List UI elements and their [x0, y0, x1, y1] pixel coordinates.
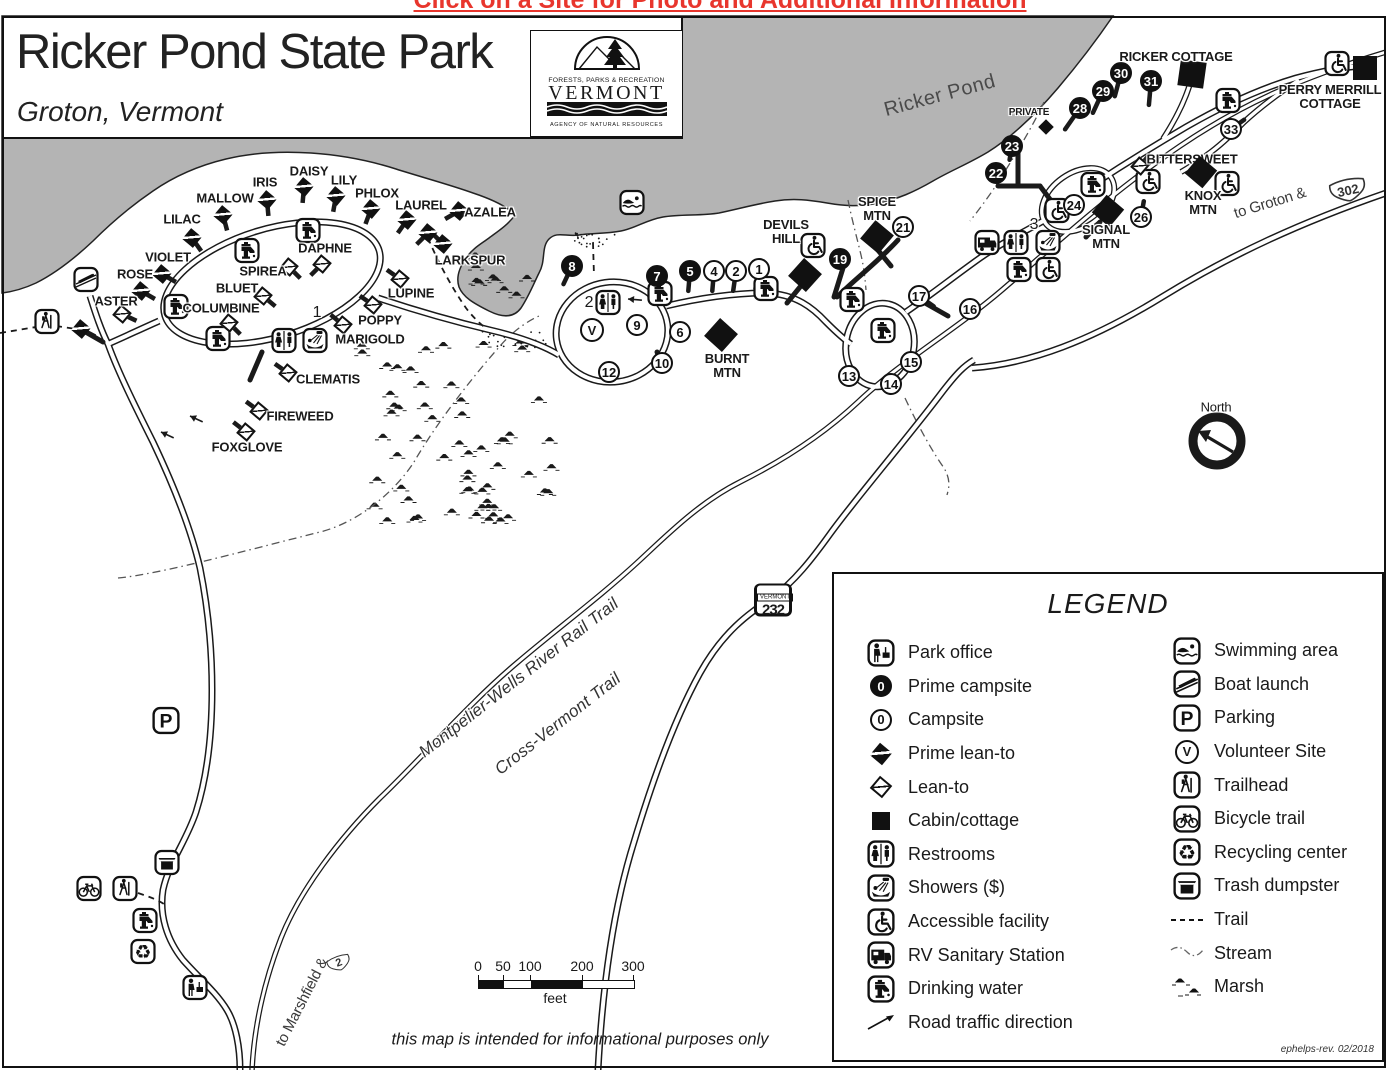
- roadarrow-legend-icon: [864, 1012, 898, 1032]
- scale-tick-label: 300: [621, 958, 644, 974]
- legend-item-trail: Trail: [1170, 903, 1347, 937]
- legend-item-cabin-cottage: Cabin/cottage: [864, 804, 1073, 838]
- showers-legend-icon: [864, 874, 898, 902]
- boat-legend-icon: [1170, 670, 1204, 698]
- legend-item-bicycle-trail: Bicycle trail: [1170, 802, 1347, 836]
- parkoffice-legend-icon: [864, 639, 898, 667]
- stream-legend-icon: [1170, 945, 1204, 961]
- scale-tick-label: 0: [474, 958, 482, 974]
- scale-tick-label: 100: [518, 958, 541, 974]
- legend-item-prime-lean-to: Prime lean-to: [864, 737, 1073, 771]
- legend-title: LEGEND: [834, 588, 1382, 620]
- logo-arch-icon: [571, 31, 643, 71]
- marsh-legend-icon: [1170, 974, 1204, 1000]
- legend-item-trailhead: Trailhead: [1170, 768, 1347, 802]
- rv-legend-icon: [864, 941, 898, 969]
- logo-line3: AGENCY OF NATURAL RESOURCES: [531, 122, 682, 128]
- water-legend-icon: [864, 975, 898, 1003]
- park-title: Ricker Pond State Park: [16, 24, 492, 80]
- map-credit: ephelps-rev. 02/2018: [1281, 1044, 1374, 1055]
- legend-item-drinking-water: Drinking water: [864, 972, 1073, 1006]
- legend-item-campsite: 0 Campsite: [864, 703, 1073, 737]
- logo-wave-band-icon: [547, 102, 667, 116]
- leanto-legend-icon: [864, 779, 898, 795]
- svg-text:P: P: [1181, 708, 1194, 730]
- map-page: Click on a Site for Photo and Additional…: [0, 0, 1386, 1070]
- opencirc-legend-icon: 0: [864, 709, 898, 731]
- legend-item-rv-sanitary-station: RV Sanitary Station: [864, 938, 1073, 972]
- legend-item-marsh: Marsh: [1170, 970, 1347, 1004]
- legend-item-restrooms: Restrooms: [864, 838, 1073, 872]
- scale-tick-label: 50: [495, 958, 511, 974]
- primecirc-legend-icon: 0: [864, 675, 898, 697]
- vermont-fpr-logo: FORESTS, PARKS & RECREATION VERMONT AGEN…: [530, 30, 683, 137]
- volunteer-legend-icon: V: [1170, 740, 1204, 764]
- logo-line2: VERMONT: [531, 84, 682, 102]
- primeleanto-legend-icon: [864, 746, 898, 762]
- scale-unit-label: feet: [543, 990, 566, 1006]
- title-block: Ricker Pond State Park Groton, Vermont F…: [2, 16, 683, 139]
- park-subtitle: Groton, Vermont: [17, 96, 223, 128]
- trail-legend-icon: [1170, 915, 1204, 925]
- restrooms-legend-icon: [864, 840, 898, 868]
- trailhead-legend-icon: [1170, 771, 1204, 799]
- scale-bar: 050100200300 feet: [450, 958, 670, 1010]
- accessible-legend-icon: [864, 908, 898, 936]
- legend-item-prime-campsite: 0 Prime campsite: [864, 670, 1073, 704]
- footer-note: this map is intended for informational p…: [392, 1031, 769, 1050]
- legend-item-trash-dumpster: Trash dumpster: [1170, 869, 1347, 903]
- legend-item-showers-: Showers ($): [864, 871, 1073, 905]
- svg-text:♻: ♻: [1178, 841, 1196, 865]
- legend: LEGEND Park office 0 Prime campsite 0 Ca…: [832, 572, 1384, 1062]
- legend-item-boat-launch: Boat launch: [1170, 668, 1347, 702]
- legend-item-accessible-facility: Accessible facility: [864, 905, 1073, 939]
- legend-item-stream: Stream: [1170, 936, 1347, 970]
- legend-item-volunteer-site: V Volunteer Site: [1170, 735, 1347, 769]
- legend-item-parking: P Parking: [1170, 701, 1347, 735]
- legend-item-park-office: Park office: [864, 636, 1073, 670]
- legend-item-lean-to: Lean-to: [864, 770, 1073, 804]
- legend-item-road-traffic-direction: Road traffic direction: [864, 1006, 1073, 1040]
- legend-item-recycling-center: ♻ Recycling center: [1170, 836, 1347, 870]
- legend-item-swimming-area: Swimming area: [1170, 634, 1347, 668]
- recycle-legend-icon: ♻: [1170, 838, 1204, 866]
- scale-tick-label: 200: [570, 958, 593, 974]
- parking-legend-icon: P: [1170, 704, 1204, 732]
- swim-legend-icon: [1170, 637, 1204, 665]
- cabin-legend-icon: [864, 812, 898, 830]
- bicycle-legend-icon: [1170, 805, 1204, 833]
- trash-legend-icon: [1170, 872, 1204, 900]
